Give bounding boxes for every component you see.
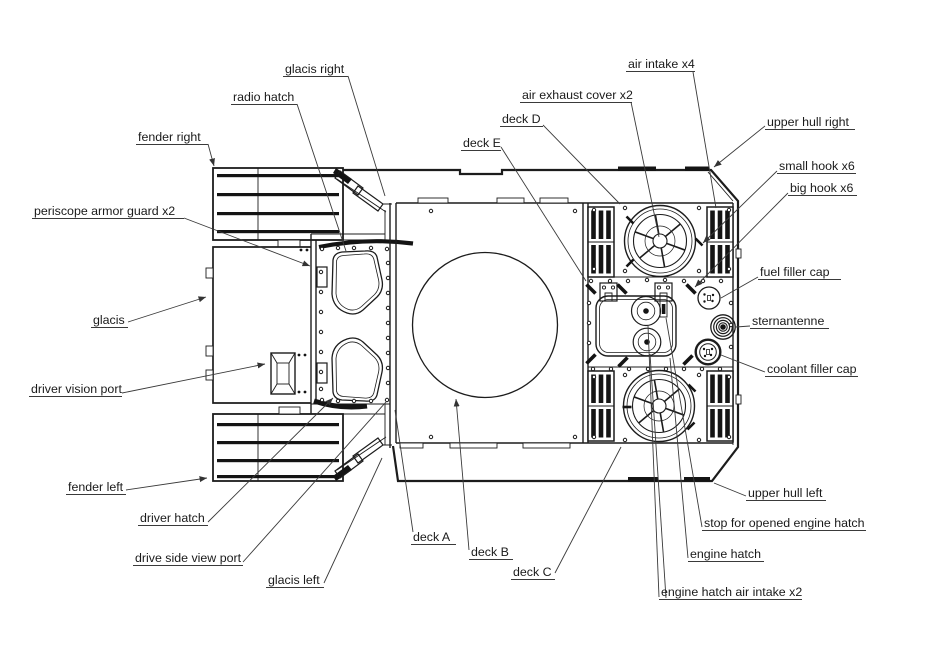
svg-text:glacis left: glacis left (268, 573, 320, 587)
svg-text:driver hatch: driver hatch (140, 511, 205, 525)
engine-hatch-stop-shape (660, 301, 667, 317)
svg-text:deck C: deck C (513, 565, 552, 579)
outer-hull-edge (343, 170, 738, 481)
svg-text:drive side view port: drive side view port (135, 551, 242, 565)
diagram-canvas: glacis right radio hatch fender right pe… (0, 0, 932, 661)
right-edge-notch (736, 395, 741, 404)
engine-hatch-hinge (600, 283, 617, 301)
hull-edge-tab (685, 167, 709, 172)
svg-text:deck D: deck D (502, 112, 541, 126)
label-deck-e: deck E (461, 136, 586, 281)
svg-text:glacis right: glacis right (285, 62, 345, 76)
label-glacis: glacis (91, 297, 206, 328)
label-driver-vision-port: driver vision port (29, 364, 265, 397)
svg-text:glacis: glacis (93, 313, 125, 327)
svg-text:driver vision port: driver vision port (31, 382, 122, 396)
hull-edge-tab (684, 477, 710, 482)
label-radio-hatch: radio hatch (231, 90, 346, 251)
callout-labels: glacis right radio hatch fender right pe… (29, 57, 866, 600)
svg-text:sternantenne: sternantenne (752, 314, 824, 328)
label-coolant-filler-cap: coolant filler cap (721, 355, 858, 377)
fender-left-slats (217, 423, 339, 478)
svg-text:upper hull left: upper hull left (748, 486, 823, 500)
svg-text:coolant filler cap: coolant filler cap (767, 362, 857, 376)
svg-text:fender left: fender left (68, 480, 124, 494)
svg-text:small hook x6: small hook x6 (779, 159, 855, 173)
svg-text:radio hatch: radio hatch (233, 90, 294, 104)
svg-text:deck B: deck B (471, 545, 509, 559)
label-deck-a: deck A (395, 410, 456, 545)
svg-text:periscope armor guard x2: periscope armor guard x2 (34, 204, 175, 218)
hull-edge-tab (618, 167, 656, 172)
hatch-seal-band (319, 241, 413, 247)
label-deck-d: deck D (500, 112, 620, 204)
hull-edge-tab (628, 477, 658, 482)
svg-text:deck A: deck A (413, 530, 451, 544)
label-fender-left: fender left (66, 478, 207, 495)
coolant-filler-cap-shape (696, 340, 721, 365)
glacis-left-shape (333, 437, 392, 481)
turret-ring-opening (413, 253, 558, 398)
label-upper-hull-left: upper hull left (714, 483, 826, 501)
label-deck-b: deck B (456, 399, 513, 560)
svg-text:stop for opened engine hatch: stop for opened engine hatch (704, 516, 865, 530)
svg-text:fender right: fender right (138, 130, 201, 144)
svg-text:air exhaust cover x2: air exhaust cover x2 (522, 88, 633, 102)
svg-text:big hook x6: big hook x6 (790, 181, 853, 195)
label-deck-c: deck C (511, 447, 621, 580)
svg-text:upper hull right: upper hull right (767, 115, 850, 129)
fender-right-slats (217, 174, 339, 233)
radio-hatch-shape (332, 251, 382, 314)
hull-drawing (206, 167, 741, 482)
svg-text:air intake x4: air intake x4 (628, 57, 695, 71)
cooling-fans (624, 206, 696, 442)
right-edge-notch (736, 249, 741, 258)
label-fender-right: fender right (136, 130, 214, 166)
engine-hatch-shape (596, 283, 676, 356)
label-sternantenne: sternantenne (736, 314, 829, 329)
driver-vision-port-shape (271, 353, 295, 394)
svg-text:fuel filler cap: fuel filler cap (760, 265, 830, 279)
engine-hatch-hinge (655, 283, 672, 301)
engine-hatch-air-intake-shape (632, 297, 661, 356)
svg-text:engine hatch: engine hatch (690, 547, 761, 561)
periscope-armor-guard-shape (317, 267, 327, 287)
svg-text:engine hatch air intake x2: engine hatch air intake x2 (661, 585, 802, 599)
fuel-filler-cap-shape (698, 287, 720, 309)
svg-text:deck E: deck E (463, 136, 501, 150)
label-air-intake: air intake x4 (626, 57, 716, 208)
fender-right-shape (213, 168, 343, 247)
driver-hatch-shape (332, 338, 382, 401)
diagram-page: glacis right radio hatch fender right pe… (0, 0, 932, 661)
